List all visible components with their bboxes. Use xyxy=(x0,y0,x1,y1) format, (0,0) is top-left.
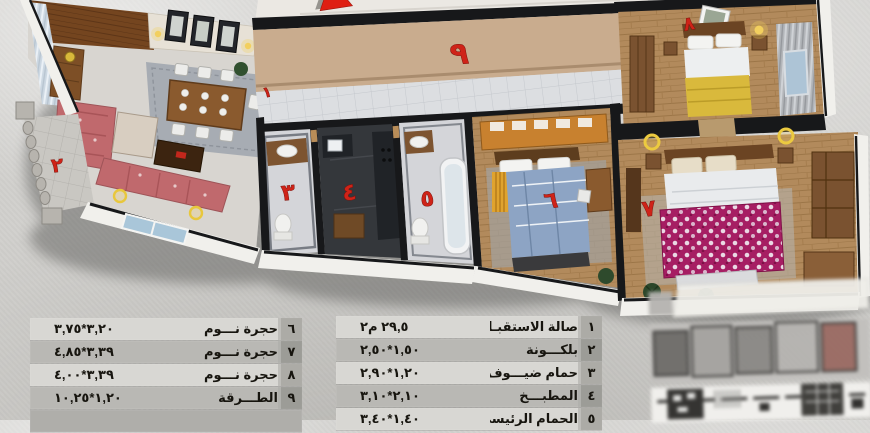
bed-blanket-yellow xyxy=(685,75,752,117)
room-dimensions: ٢,٥٠‎*‎١,٥٠ xyxy=(336,339,490,361)
room-dimensions: ٤,٨٥‎*‎٣,٣٩ xyxy=(30,341,184,363)
wardrobe xyxy=(812,152,854,238)
desk xyxy=(586,168,612,212)
plant xyxy=(234,62,248,76)
bathtub xyxy=(440,157,471,254)
nightstand xyxy=(778,148,793,163)
plan-numeral-3: ٣ xyxy=(280,179,297,206)
room-name: المطبـــخ xyxy=(490,385,578,407)
nightstand xyxy=(664,42,677,55)
room-number: ٦ xyxy=(278,318,302,340)
room-kitchen xyxy=(317,124,402,258)
room-dimensions: ١٠,٢٥‎*‎١,٢٠ xyxy=(30,387,184,409)
real-estate-floorplan-flyer: { "plan": { "numerals": ["\u0661","\u066… xyxy=(0,0,870,420)
plant xyxy=(598,268,614,284)
room-name: الطـــرقة xyxy=(184,387,278,409)
room-name: حجرة نـــوم xyxy=(184,341,278,363)
room-dimensions: ٢,٩٠‎*‎١,٢٠ xyxy=(336,362,490,384)
room-number: ٧ xyxy=(278,341,302,363)
legend-row: ٣,٤٠‎*‎١,٤٠ الحمام الرئيسي ٥ xyxy=(336,408,602,430)
room-dimensions: ٣,١٠‎*‎٢,١٠ xyxy=(336,385,490,407)
legend-table-left: ٣,٧٥‎*‎٣,٢٠ حجرة نـــوم ٦ ٤,٨٥‎*‎٣,٣٩ حج… xyxy=(30,318,302,433)
room-number: ٨ xyxy=(278,364,302,386)
legend-row: ٢,٥٠‎*‎١,٥٠ بلكـــونة ٢ xyxy=(336,339,602,361)
legend-row: ٣,٧٥‎*‎٣,٢٠ حجرة نـــوم ٦ xyxy=(30,318,302,340)
room-name: بلكـــونة xyxy=(490,339,578,361)
room-name: صالة الاستقبـال xyxy=(490,316,578,338)
wardrobe xyxy=(630,36,654,112)
legend-table-right: ٢٩,٥ م٢ صالة الاستقبـال ١ ٢,٥٠‎*‎١,٥٠ بل… xyxy=(336,316,602,431)
plan-numeral-2: ٢ xyxy=(50,152,65,177)
bed-quilt-magenta xyxy=(660,202,784,278)
room-number: ٢ xyxy=(578,339,602,361)
room-area: ٢٩,٥ م٢ xyxy=(336,316,490,338)
legend-row: ٣,١٠‎*‎٢,١٠ المطبـــخ ٤ xyxy=(336,385,602,407)
legend-row: ٤,٨٥‎*‎٣,٣٩ حجرة نـــوم ٧ xyxy=(30,341,302,363)
room-name: حمام ضيـــوف xyxy=(490,362,578,384)
kitchen-island xyxy=(334,214,364,238)
kitchen-sink xyxy=(328,140,342,151)
legend-row: ٤,٠٠‎*‎٣,٣٩ حجرة نـــوم ٨ xyxy=(30,364,302,386)
plan-numeral-5: ٥ xyxy=(419,185,436,212)
room-number: ٣ xyxy=(578,362,602,384)
plan-numeral-4: ٤ xyxy=(341,177,358,206)
room-name: حجرة نـــوم xyxy=(184,364,278,386)
room-name: الحمام الرئيسي xyxy=(490,408,578,430)
toilet xyxy=(275,214,291,234)
room-number: ٩ xyxy=(278,387,302,409)
room-name: حجرة نـــوم xyxy=(184,318,278,340)
toilet xyxy=(412,218,428,238)
lamp xyxy=(755,26,764,35)
sink-basin xyxy=(277,145,297,157)
legend-row: ٢٩,٥ م٢ صالة الاستقبـال ١ xyxy=(336,316,602,338)
room-number: ٥ xyxy=(578,408,602,430)
room-bedroom-8 xyxy=(614,0,836,134)
room-number: ٤ xyxy=(578,385,602,407)
tv-unit xyxy=(626,168,641,232)
nightstand xyxy=(646,154,661,169)
wall-clock xyxy=(65,52,75,62)
room-main-bath xyxy=(399,119,476,264)
room-dimensions: ٤,٠٠‎*‎٣,٣٩ xyxy=(30,364,184,386)
room-number: ١ xyxy=(578,316,602,338)
legend-row-empty xyxy=(30,410,302,432)
plan-numeral-9: ٩ xyxy=(449,35,470,72)
door-gap xyxy=(698,118,736,138)
room-dimensions: ٣,٧٥‎*‎٣,٢٠ xyxy=(30,318,184,340)
window xyxy=(784,50,808,96)
room-dimensions: ٣,٤٠‎*‎١,٤٠ xyxy=(336,408,490,430)
legend-row: ٢,٩٠‎*‎١,٢٠ حمام ضيـــوف ٣ xyxy=(336,362,602,384)
mini-plan-inset xyxy=(648,278,870,423)
legend-row: ١٠,٢٥‎*‎١,٢٠ الطـــرقة ٩ xyxy=(30,387,302,409)
